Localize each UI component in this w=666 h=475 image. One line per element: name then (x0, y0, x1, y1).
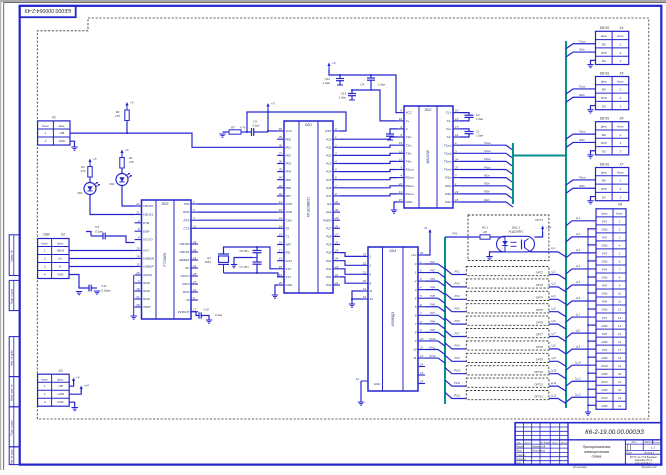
svg-text:Цепь: Цепь (57, 377, 64, 381)
svg-text:АОД203МС: АОД203МС (508, 230, 525, 234)
svg-text:+5: +5 (76, 375, 80, 379)
svg-text:16: 16 (420, 380, 424, 384)
svg-text:3V3OUT: 3V3OUT (178, 310, 191, 314)
svg-text:8: 8 (415, 331, 417, 335)
svg-text:VD1: VD1 (77, 191, 83, 195)
svg-text:22: 22 (334, 273, 339, 277)
svg-text:35: 35 (279, 168, 283, 172)
svg-text:PV11: PV11 (601, 380, 608, 384)
svg-text:OPT2: OPT2 (536, 271, 544, 275)
svg-text:Конт: Конт (617, 79, 624, 83)
svg-text:GND: GND (602, 308, 608, 312)
svg-text:29: 29 (334, 216, 339, 220)
svg-text:R7: R7 (231, 126, 235, 130)
svg-text:P27: P27 (326, 226, 332, 230)
svg-text:DB-9S: DB-9S (600, 117, 610, 121)
svg-text:К6-2-19.00.00.000ЭЗ: К6-2-19.00.00.000ЭЗ (585, 429, 644, 436)
svg-text:I0: I0 (370, 289, 373, 293)
svg-text:GND: GND (143, 281, 151, 285)
svg-text:К555ИД3: К555ИД3 (391, 312, 395, 326)
svg-text:X8: X8 (617, 203, 622, 207)
svg-text:RD: RD (602, 88, 606, 92)
svg-text:R3out: R3out (406, 184, 414, 188)
svg-text:20: 20 (454, 166, 459, 170)
svg-text:P11: P11 (326, 145, 332, 149)
svg-text:2: 2 (414, 279, 417, 283)
svg-text:24: 24 (617, 404, 621, 408)
svg-text:OPT12: OPT12 (534, 395, 543, 399)
svg-text:P20: P20 (326, 283, 332, 287)
svg-text:2: 2 (419, 269, 422, 273)
svg-text:37: 37 (279, 151, 283, 155)
svg-text:P25: P25 (326, 243, 332, 247)
svg-text:T1out: T1out (444, 143, 452, 147)
svg-text:USBDP: USBDP (143, 265, 154, 269)
svg-text:Ц.7: Ц.7 (576, 312, 581, 316)
svg-text:WR: WR (286, 243, 292, 247)
svg-text:DTR: DTR (143, 221, 150, 225)
svg-text:Цепь: Цепь (601, 211, 608, 215)
svg-text:2: 2 (619, 179, 622, 183)
svg-text:USBDM: USBDM (143, 257, 154, 261)
svg-text:GND: GND (286, 283, 294, 287)
svg-text:PV10: PV10 (454, 369, 461, 373)
svg-text:24: 24 (419, 251, 424, 255)
svg-text:OPT1: OPT1 (535, 218, 543, 222)
svg-text:T2out: T2out (444, 151, 452, 155)
svg-text:Ц.4: Ц.4 (576, 264, 581, 268)
svg-text:10: 10 (399, 117, 403, 121)
svg-text:Ц.11: Ц.11 (551, 381, 557, 385)
svg-text:Ц.10: Ц.10 (551, 369, 557, 373)
svg-text:R1in: R1in (579, 48, 585, 52)
svg-text:MAX238: MAX238 (426, 150, 430, 163)
svg-text:23: 23 (617, 396, 621, 400)
svg-text:15: 15 (279, 232, 283, 236)
svg-text:2: 2 (619, 43, 622, 47)
svg-text:V+: V+ (406, 119, 410, 123)
svg-text:PV6: PV6 (455, 319, 460, 323)
svg-text:2: 2 (369, 263, 372, 267)
svg-text:1: 1 (370, 255, 372, 259)
svg-text:Ц.3: Ц.3 (551, 282, 556, 286)
svg-text:2: 2 (137, 219, 140, 223)
svg-text:Ц.9: Ц.9 (576, 344, 581, 348)
svg-text:C7 30п: C7 30п (239, 265, 248, 269)
svg-text:DB-9S: DB-9S (600, 71, 610, 75)
svg-text:T1out: T1out (484, 141, 491, 145)
svg-text:Группа ИУ4-71: Группа ИУ4-71 (635, 462, 653, 465)
svg-text:13: 13 (279, 257, 283, 261)
svg-text:2: 2 (619, 133, 622, 137)
svg-text:VCC: VCC (143, 249, 150, 253)
svg-text:VCC: VCC (406, 111, 413, 115)
svg-text:FT232RL: FT232RL (163, 252, 167, 266)
svg-text:Большаков: Большаков (533, 450, 546, 453)
svg-text:PV10: PV10 (601, 364, 608, 368)
svg-text:RI: RI (186, 298, 189, 302)
svg-text:DSR: DSR (143, 229, 150, 233)
svg-text:26: 26 (135, 303, 140, 307)
svg-text:Принципиальная: Принципиальная (583, 445, 611, 449)
svg-text:Формат А3: Формат А3 (642, 465, 657, 469)
svg-text:Ц.10: Ц.10 (575, 360, 581, 364)
svg-text:DB-9S: DB-9S (600, 26, 610, 30)
svg-text:22: 22 (135, 202, 140, 206)
svg-text:270: 270 (80, 169, 86, 173)
svg-text:25: 25 (334, 249, 339, 253)
svg-text:30: 30 (335, 208, 339, 212)
svg-text:OPT4: OPT4 (536, 296, 544, 300)
svg-text:PV7: PV7 (455, 331, 460, 335)
svg-text:1.0мк: 1.0мк (323, 81, 331, 85)
svg-text:R3in: R3in (579, 138, 585, 142)
svg-text:15: 15 (618, 332, 621, 336)
svg-text:Ц.11: Ц.11 (575, 376, 581, 380)
svg-text:CBUS1: CBUS1 (143, 213, 153, 217)
svg-text:C2+: C2+ (446, 127, 452, 131)
svg-text:23: 23 (334, 265, 339, 269)
svg-text:GND: GND (602, 228, 608, 232)
svg-text:+5: +5 (130, 101, 134, 105)
svg-text:20: 20 (135, 247, 140, 251)
svg-text:0.1мк: 0.1мк (252, 124, 260, 128)
svg-text:Дата: Дата (560, 442, 568, 444)
svg-text:PV7: PV7 (602, 316, 608, 320)
svg-text:T2in: T2in (406, 143, 412, 147)
svg-text:Конт: Конт (617, 34, 624, 38)
svg-text:1:1: 1:1 (651, 446, 655, 450)
svg-text:4: 4 (370, 272, 372, 276)
svg-text:GND: GND (602, 356, 608, 360)
svg-text:1: 1 (415, 271, 417, 275)
svg-text:20: 20 (362, 279, 367, 283)
svg-text:GND: GND (602, 292, 608, 296)
svg-text:38: 38 (279, 143, 283, 147)
svg-text:Разраб.: Разраб. (516, 445, 525, 448)
svg-text:1.0мк: 1.0мк (339, 96, 347, 100)
svg-text:GND: GND (602, 244, 608, 248)
svg-text:PV11: PV11 (429, 345, 436, 349)
svg-text:23: 23 (192, 240, 197, 244)
svg-text:10: 10 (420, 337, 424, 341)
svg-text:PV12: PV12 (454, 393, 461, 397)
svg-text:21: 21 (135, 211, 140, 215)
svg-text:2: 2 (619, 88, 622, 92)
svg-text:PV6: PV6 (430, 303, 435, 307)
svg-text:19: 19 (618, 364, 621, 368)
svg-text:Цепь: Цепь (601, 79, 608, 83)
svg-text:VCCIO: VCCIO (143, 238, 153, 242)
svg-text:Подп. и дата: Подп. и дата (9, 288, 13, 304)
svg-text:PV12: PV12 (601, 396, 608, 400)
svg-text:13: 13 (618, 316, 621, 320)
svg-text:22: 22 (192, 248, 197, 252)
svg-text:21: 21 (617, 380, 621, 384)
svg-text:C1+: C1+ (446, 111, 452, 115)
svg-text:X6: X6 (619, 117, 624, 121)
svg-text:Копировал: Копировал (573, 465, 587, 469)
svg-text:4МГц: 4МГц (205, 260, 212, 264)
svg-text:T3out: T3out (484, 157, 491, 161)
svg-text:DTR: DTR (601, 187, 607, 191)
svg-text:CBUS0: CBUS0 (179, 242, 189, 246)
svg-text:Ц.7: Ц.7 (551, 331, 556, 335)
svg-text:CBUS1: CBUS1 (179, 250, 189, 254)
svg-text:схема: схема (592, 454, 602, 458)
svg-text:OPT11: OPT11 (534, 382, 543, 386)
svg-text:P24: P24 (326, 251, 332, 255)
svg-text:270: 270 (114, 114, 120, 118)
svg-text:Q1: Q1 (207, 256, 211, 260)
svg-text:16: 16 (618, 340, 621, 344)
svg-text:Ц.3: Ц.3 (576, 248, 581, 252)
svg-text:RESET: RESET (179, 258, 190, 262)
svg-text:GND: GND (143, 297, 151, 301)
svg-text:№ докум.: № докум. (541, 441, 552, 444)
svg-text:18: 18 (279, 265, 283, 269)
svg-text:C2-: C2- (447, 135, 452, 139)
svg-text:P10: P10 (326, 137, 332, 141)
svg-text:Ц.6: Ц.6 (576, 296, 581, 300)
svg-text:31: 31 (335, 200, 339, 204)
svg-text:8: 8 (370, 281, 372, 285)
svg-text:15: 15 (399, 198, 403, 202)
svg-text:Z1: Z1 (369, 297, 374, 301)
svg-text:P17: P17 (326, 194, 332, 198)
svg-text:Конт: Конт (617, 125, 624, 129)
svg-text:24: 24 (334, 257, 339, 261)
svg-text:электрическая: электрическая (584, 450, 609, 454)
svg-text:R5.1: R5.1 (482, 226, 488, 230)
svg-text:16: 16 (136, 255, 140, 259)
svg-text:Конт: Конт (617, 170, 624, 174)
svg-text:14: 14 (618, 324, 621, 328)
svg-text:RD: RD (602, 43, 606, 47)
svg-text:DB-9S: DB-9S (600, 162, 610, 166)
svg-text:PV5: PV5 (430, 294, 435, 298)
svg-text:DD1: DD1 (305, 123, 312, 127)
svg-text:PV8: PV8 (455, 344, 460, 348)
svg-text:TXD: TXD (183, 202, 190, 206)
svg-text:3: 3 (415, 288, 417, 292)
svg-text:Цепь: Цепь (57, 242, 64, 246)
svg-text:4: 4 (415, 296, 417, 300)
svg-text:11: 11 (193, 224, 196, 228)
svg-text:OPT8: OPT8 (536, 345, 544, 349)
svg-text:P16: P16 (326, 186, 332, 190)
svg-text:OSCI: OSCI (182, 282, 190, 286)
svg-text:ALE: ALE (325, 210, 333, 214)
svg-text:DD2: DD2 (425, 108, 432, 112)
svg-text:R2out: R2out (406, 176, 414, 180)
svg-text:PV1: PV1 (430, 260, 435, 264)
svg-text:Цепь: Цепь (601, 125, 608, 129)
svg-text:0.01мк: 0.01мк (101, 289, 111, 293)
svg-text:PV9: PV9 (602, 348, 608, 352)
svg-text:+5: +5 (424, 226, 428, 230)
svg-text:Ц.2: Ц.2 (576, 232, 581, 236)
svg-text:Ц.6: Ц.6 (551, 319, 556, 323)
svg-text:18: 18 (136, 287, 140, 291)
svg-text:Ц.1: Ц.1 (551, 246, 556, 250)
svg-text:P03: P03 (286, 162, 292, 166)
svg-text:T1out: T1out (579, 39, 586, 43)
svg-text:T3out: T3out (444, 160, 452, 164)
svg-text:33: 33 (279, 184, 283, 188)
svg-text:P12: P12 (326, 154, 332, 158)
svg-text:X2: X2 (60, 232, 65, 236)
svg-text:Конт: Конт (42, 124, 49, 128)
svg-text:+24В: +24В (57, 392, 64, 396)
svg-text:2: 2 (334, 143, 337, 147)
svg-text:28: 28 (192, 272, 197, 276)
svg-text:PV2: PV2 (602, 236, 608, 240)
svg-text:OPT3: OPT3 (536, 283, 544, 287)
svg-text:40: 40 (279, 127, 283, 131)
svg-text:PV3: PV3 (430, 277, 435, 281)
svg-text:Ц.8: Ц.8 (576, 328, 581, 332)
svg-text:2: 2 (43, 392, 46, 396)
svg-text:11: 11 (618, 300, 621, 304)
svg-text:10: 10 (193, 288, 197, 292)
svg-text:21: 21 (398, 157, 403, 161)
svg-text:Листов 1: Листов 1 (643, 453, 655, 455)
svg-text:PV1: PV1 (602, 220, 608, 224)
svg-text:R2in: R2in (579, 93, 585, 97)
svg-text:12: 12 (455, 117, 459, 121)
svg-text:GND: GND (57, 272, 63, 276)
svg-text:R4out: R4out (406, 192, 414, 196)
svg-text:PV1: PV1 (453, 232, 458, 236)
svg-text:P05: P05 (286, 178, 292, 182)
svg-text:21: 21 (362, 270, 367, 274)
svg-text:VBUS: VBUS (56, 248, 64, 252)
svg-text:PV6: PV6 (602, 300, 608, 304)
svg-text:Подп.: Подп. (552, 441, 558, 444)
svg-text:OPT10: OPT10 (534, 370, 543, 374)
svg-text:GND: GND (406, 200, 414, 204)
svg-text:20: 20 (617, 372, 621, 376)
svg-text:T1: T1 (286, 235, 290, 239)
svg-text:Утв.: Утв. (516, 462, 522, 465)
svg-text:CBUS0: CBUS0 (143, 204, 153, 208)
svg-text:13: 13 (399, 190, 403, 194)
svg-text:PV5: PV5 (602, 284, 608, 288)
svg-text:PV9: PV9 (455, 356, 460, 360)
svg-text:T0: T0 (286, 226, 290, 230)
svg-text:R4in: R4in (579, 184, 585, 188)
svg-text:Изм: Изм (517, 442, 522, 444)
svg-text:GND: GND (374, 382, 380, 386)
svg-text:Лист: Лист (524, 442, 531, 444)
svg-text:19: 19 (399, 141, 403, 145)
svg-text:PV8: PV8 (602, 332, 608, 336)
svg-text:Ucc: Ucc (411, 253, 417, 257)
svg-text:Взам. инв. №: Взам. инв. № (9, 384, 13, 400)
svg-text:14: 14 (279, 224, 283, 228)
svg-text:11: 11 (420, 346, 423, 350)
svg-text:15: 15 (420, 371, 424, 375)
svg-text:P07: P07 (286, 194, 292, 198)
svg-text:X3: X3 (57, 369, 62, 373)
svg-text:Ц.8: Ц.8 (551, 344, 556, 348)
svg-text:P21: P21 (326, 275, 332, 279)
svg-text:OPT6: OPT6 (536, 320, 544, 324)
svg-text:TEST: TEST (143, 305, 152, 309)
svg-text:X5: X5 (619, 71, 624, 75)
svg-text:R2in: R2in (484, 182, 490, 186)
svg-text:Т.контр.: Т.контр. (516, 454, 526, 457)
svg-text:0.1мк: 0.1мк (215, 313, 223, 317)
svg-text:Инв. № дубл.: Инв. № дубл. (9, 349, 13, 365)
svg-text:24: 24 (454, 157, 459, 161)
svg-text:22: 22 (362, 261, 367, 265)
svg-text:R4in: R4in (445, 200, 452, 204)
svg-text:GND: GND (59, 139, 65, 143)
svg-text:DCD: DCD (183, 290, 190, 294)
svg-text:PV4: PV4 (455, 294, 460, 298)
svg-text:R1out: R1out (406, 168, 414, 172)
svg-text:Ц.12: Ц.12 (551, 393, 557, 397)
svg-text:OPT5: OPT5 (536, 308, 544, 312)
svg-text:PV7: PV7 (430, 311, 435, 315)
svg-text:9: 9 (415, 339, 417, 343)
svg-text:22: 22 (617, 388, 621, 392)
svg-text:PV3: PV3 (455, 282, 460, 286)
svg-text:Н.контр.: Н.контр. (516, 458, 526, 461)
svg-text:PV4: PV4 (430, 285, 435, 289)
svg-text:24: 24 (192, 264, 197, 268)
svg-text:22: 22 (398, 182, 403, 186)
svg-text:10: 10 (455, 109, 459, 113)
svg-text:RD: RD (602, 179, 606, 183)
svg-text:T3in: T3in (406, 151, 412, 155)
svg-text:C6 30п: C6 30п (239, 249, 248, 253)
svg-text:PV4: PV4 (602, 268, 608, 272)
svg-text:VD2: VD2 (109, 182, 115, 186)
svg-text:PV12: PV12 (429, 354, 436, 358)
svg-text:GND: GND (602, 388, 608, 392)
svg-text:P23: P23 (326, 259, 332, 263)
svg-text:P01: P01 (286, 145, 292, 149)
svg-text:T4in: T4in (406, 160, 412, 164)
svg-text:Масштаб: Масштаб (652, 442, 663, 444)
svg-text:GND: GND (602, 276, 608, 280)
svg-text:GND: GND (602, 324, 608, 328)
svg-text:20: 20 (278, 281, 283, 285)
svg-text:32: 32 (279, 192, 283, 196)
svg-text:OPT9: OPT9 (536, 358, 544, 362)
svg-text:INT0: INT0 (286, 202, 293, 206)
svg-text:12: 12 (420, 354, 424, 358)
svg-text:R1in: R1in (484, 173, 490, 177)
svg-text:DTR: DTR (601, 96, 607, 100)
svg-text:11: 11 (279, 216, 282, 220)
svg-text:16: 16 (455, 198, 459, 202)
svg-text:P13: P13 (326, 162, 332, 166)
svg-text:2: 2 (43, 256, 46, 260)
svg-text:10: 10 (413, 348, 417, 352)
svg-text:DD3: DD3 (162, 202, 169, 206)
svg-text:Иванов И.В.: Иванов И.В. (533, 445, 547, 448)
svg-text:+5: +5 (332, 61, 336, 65)
svg-text:Подп. и дата: Подп. и дата (9, 420, 13, 436)
svg-text:DD4: DD4 (389, 249, 396, 253)
svg-text:TXD: TXD (286, 218, 293, 222)
svg-text:Инв. № подл.: Инв. № подл. (9, 448, 13, 464)
svg-text:19: 19 (193, 256, 197, 260)
